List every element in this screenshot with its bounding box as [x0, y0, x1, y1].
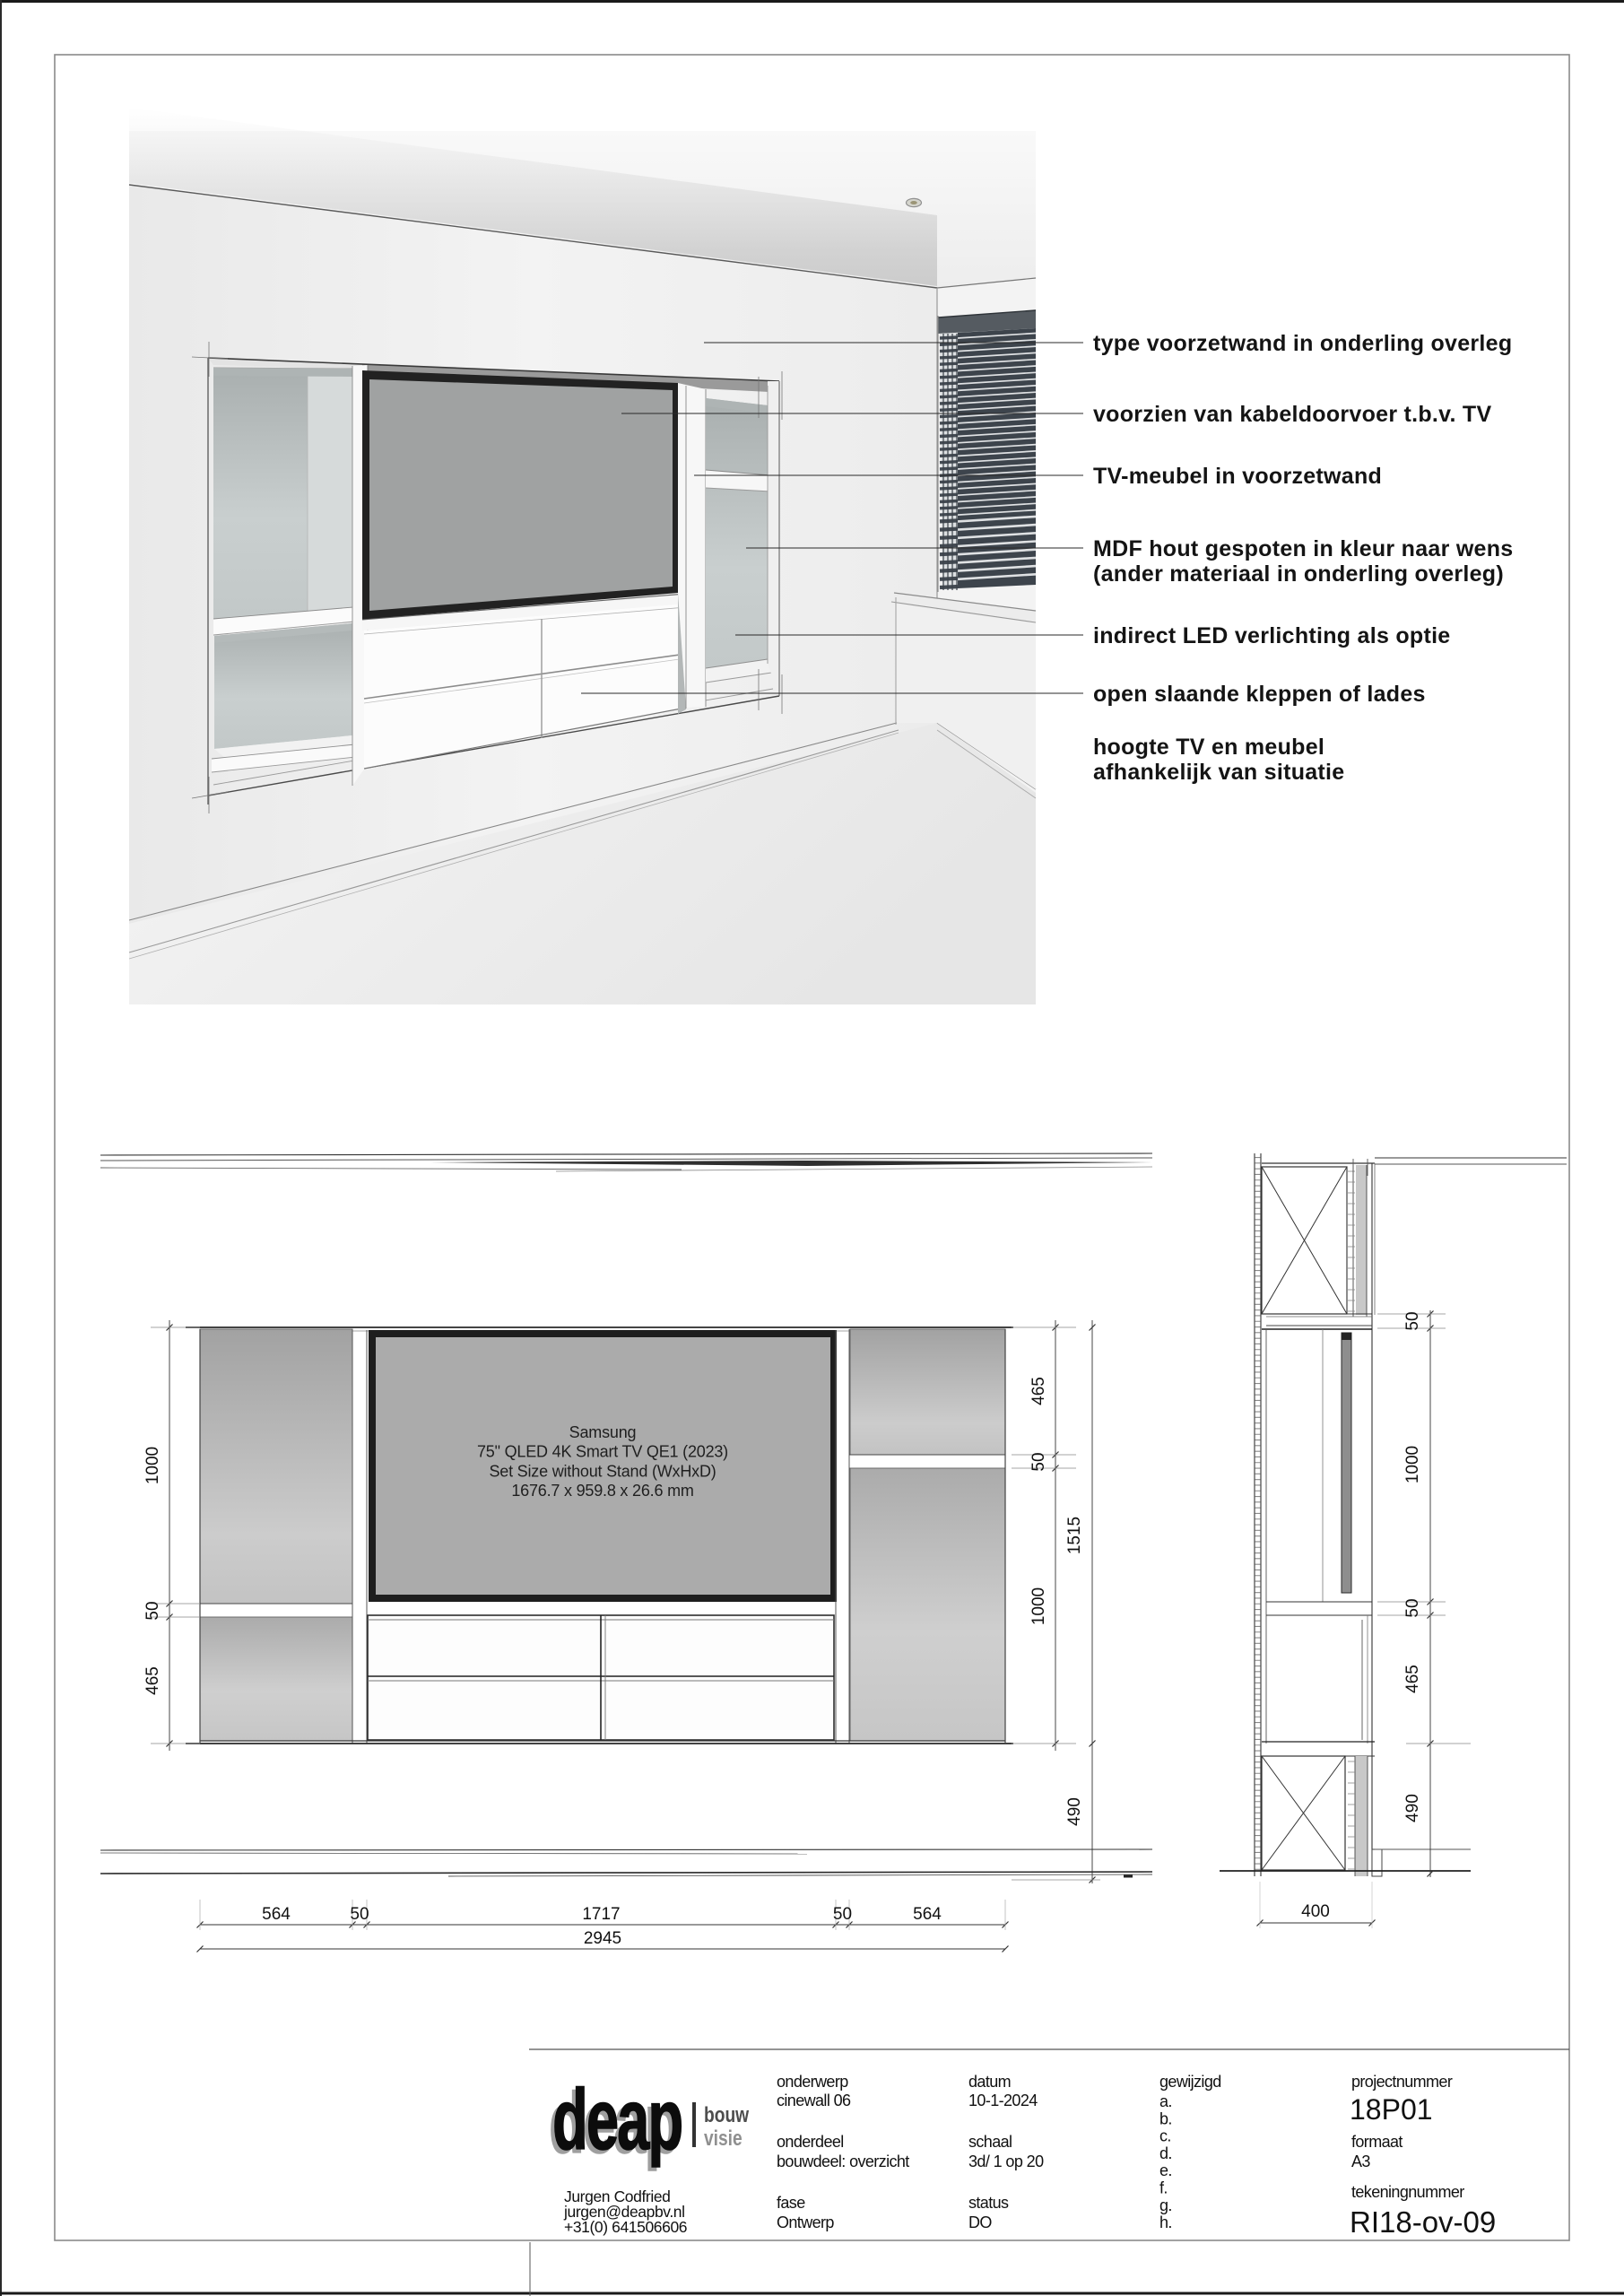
svg-text:Set Size without Stand (WxHxD): Set Size without Stand (WxHxD)	[489, 1462, 716, 1480]
svg-text:465: 465	[1403, 1665, 1422, 1693]
svg-text:open slaande kleppen of lades: open slaande kleppen of lades	[1093, 682, 1426, 707]
svg-text:2945: 2945	[584, 1929, 621, 1948]
svg-text:c.: c.	[1159, 2127, 1171, 2145]
svg-text:datum: datum	[968, 2073, 1011, 2091]
svg-text:50: 50	[1403, 1598, 1422, 1617]
svg-text:gewijzigd: gewijzigd	[1159, 2073, 1221, 2091]
svg-text:465: 465	[1029, 1377, 1048, 1405]
svg-text:bouwdeel: overzicht: bouwdeel: overzicht	[777, 2152, 909, 2170]
svg-text:TV-meubel in voorzetwand: TV-meubel in voorzetwand	[1093, 464, 1382, 489]
svg-text:type voorzetwand in onderling: type voorzetwand in onderling overleg	[1093, 331, 1512, 356]
svg-text:50: 50	[143, 1601, 162, 1620]
svg-text:564: 564	[262, 1905, 291, 1924]
svg-text:50: 50	[1029, 1452, 1048, 1471]
svg-text:onderdeel: onderdeel	[777, 2133, 844, 2151]
svg-text:Samsung: Samsung	[569, 1423, 637, 1441]
svg-text:cinewall 06: cinewall 06	[777, 2092, 851, 2109]
svg-text:afhankelijk van situatie: afhankelijk van situatie	[1093, 760, 1344, 785]
svg-text:projectnummer: projectnummer	[1351, 2073, 1453, 2091]
svg-text:h.: h.	[1159, 2213, 1172, 2231]
svg-text:1515: 1515	[1065, 1517, 1084, 1554]
svg-text:Ontwerp: Ontwerp	[777, 2213, 834, 2231]
svg-text:A3: A3	[1351, 2152, 1370, 2170]
svg-text:18P01: 18P01	[1350, 2093, 1433, 2126]
svg-text:onderwerp: onderwerp	[777, 2073, 848, 2091]
svg-text:a.: a.	[1159, 2092, 1172, 2110]
svg-text:10-1-2024: 10-1-2024	[968, 2092, 1038, 2109]
svg-text:490: 490	[1065, 1797, 1084, 1826]
svg-text:e.: e.	[1159, 2161, 1172, 2179]
svg-text:564: 564	[913, 1905, 942, 1924]
svg-text:(ander materiaal in onderling: (ander materiaal in onderling overleg)	[1093, 561, 1504, 587]
svg-text:deap: deap	[552, 2073, 682, 2168]
svg-text:3d/ 1 op 20: 3d/ 1 op 20	[968, 2152, 1044, 2170]
svg-text:75" QLED 4K Smart TV QE1 (2023: 75" QLED 4K Smart TV QE1 (2023)	[477, 1443, 728, 1461]
svg-text:RI18-ov-09: RI18-ov-09	[1350, 2205, 1496, 2239]
svg-text:DO: DO	[968, 2213, 992, 2231]
svg-text:1000: 1000	[143, 1447, 162, 1484]
svg-text:1000: 1000	[1403, 1446, 1422, 1483]
svg-text:visie: visie	[704, 2126, 743, 2151]
svg-text:status: status	[968, 2194, 1009, 2212]
svg-text:tekeningnummer: tekeningnummer	[1351, 2183, 1464, 2201]
svg-text:b.: b.	[1159, 2109, 1172, 2127]
svg-text:schaal: schaal	[968, 2133, 1012, 2151]
svg-text:hoogte TV en meubel: hoogte TV en meubel	[1093, 735, 1324, 760]
svg-text:50: 50	[833, 1905, 852, 1924]
svg-text:g.: g.	[1159, 2196, 1172, 2214]
svg-text:465: 465	[143, 1666, 162, 1695]
svg-text:fase: fase	[777, 2194, 805, 2212]
svg-text:50: 50	[1403, 1311, 1422, 1330]
svg-text:1717: 1717	[582, 1905, 620, 1924]
svg-text:bouw: bouw	[704, 2102, 749, 2127]
svg-text:f.: f.	[1159, 2179, 1168, 2197]
svg-text:d.: d.	[1159, 2144, 1172, 2162]
svg-text:+31(0) 641506606: +31(0) 641506606	[564, 2218, 687, 2236]
svg-text:1000: 1000	[1029, 1587, 1048, 1625]
svg-text:490: 490	[1403, 1794, 1422, 1822]
svg-text:400: 400	[1301, 1902, 1330, 1921]
svg-text:formaat: formaat	[1351, 2133, 1403, 2151]
svg-text:voorzien van kabeldoorvoer t.b: voorzien van kabeldoorvoer t.b.v. TV	[1093, 402, 1491, 427]
svg-text:1676.7 x 959.8 x 26.6 mm: 1676.7 x 959.8 x 26.6 mm	[511, 1482, 693, 1500]
svg-text:MDF hout gespoten in kleur naa: MDF hout gespoten in kleur naar wens	[1093, 536, 1513, 561]
svg-text:indirect LED verlichting als o: indirect LED verlichting als optie	[1093, 623, 1451, 648]
svg-text:50: 50	[350, 1905, 369, 1924]
